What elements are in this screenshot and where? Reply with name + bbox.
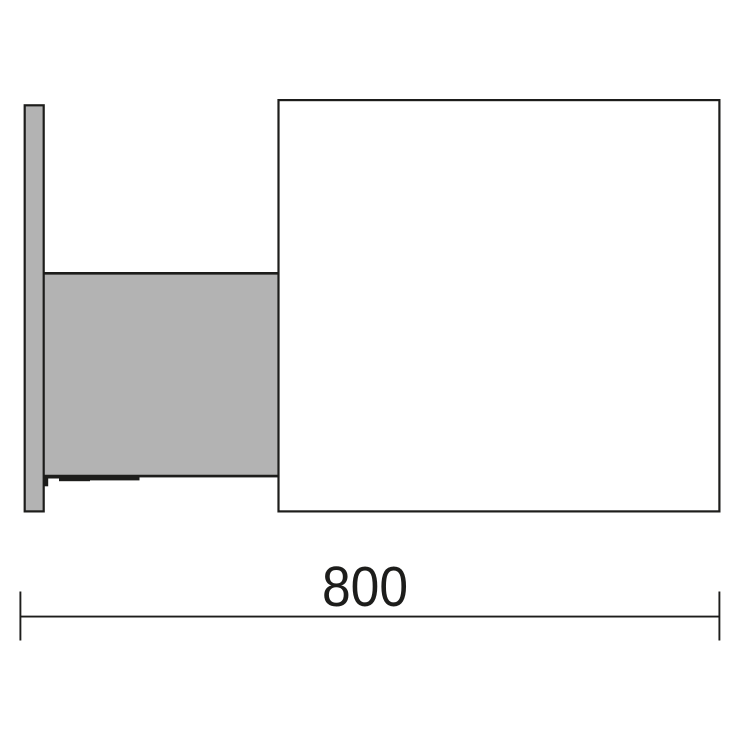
svg-text:800: 800	[322, 555, 408, 619]
